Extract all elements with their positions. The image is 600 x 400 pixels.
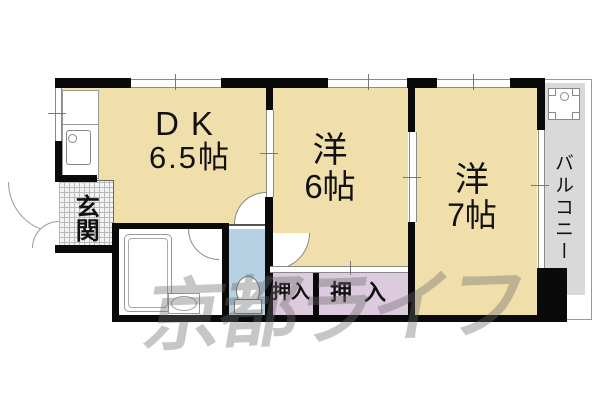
window-west6-tick — [368, 74, 369, 90]
toilet-tank-icon — [234, 299, 262, 314]
window-west7-tick — [473, 74, 474, 90]
wall-toilet-right — [265, 197, 273, 322]
wall-bath-left — [112, 223, 119, 320]
west7-room-name: 洋 — [437, 163, 507, 199]
wall-right-top — [537, 78, 545, 130]
west6-room-size: 6帖 — [295, 170, 365, 205]
wall-top-1 — [55, 78, 131, 88]
kitchen-faucet-icon — [68, 134, 77, 143]
window-dk — [131, 79, 221, 88]
toilet-door-line — [229, 224, 265, 226]
wall-west6-west7-top — [408, 78, 415, 132]
closet-right-label: 押入 — [321, 281, 407, 304]
wall-bath-top — [112, 223, 228, 229]
wall-west6-west7-bottom — [408, 222, 415, 322]
west7-room-label: 洋 7帖 — [437, 163, 507, 232]
washer-pan-icon — [548, 88, 580, 120]
wall-bottom — [112, 315, 567, 322]
window-balcony-tick — [531, 185, 549, 186]
wall-dk-west6-top — [266, 80, 273, 110]
window-balcony — [538, 130, 545, 268]
bathtub-icon — [124, 234, 172, 312]
wall-top-2 — [221, 78, 328, 88]
closet-left-label: 押入 — [268, 283, 314, 303]
closet-door-tick — [350, 261, 351, 275]
west7-room-size: 7帖 — [437, 199, 507, 233]
window-dk-tick — [175, 74, 176, 90]
dk-room-label: DK 6.5帖 — [120, 107, 260, 174]
sliding-door-west6-west7-tick — [403, 177, 421, 178]
wall-genkan-top — [55, 175, 97, 182]
closet-sliding-door — [270, 266, 408, 273]
west6-room-label: 洋 6帖 — [295, 133, 365, 204]
floorplan: バルコニー 玄関 押入 押入 — [0, 0, 600, 400]
balcony-label: バルコニー — [552, 138, 572, 278]
dk-room-size: 6.5帖 — [120, 142, 260, 175]
window-kitchen-tick — [48, 113, 66, 114]
genkan-label: 玄関 — [72, 187, 97, 249]
dk-room-name: DK — [120, 107, 260, 142]
window-kitchen — [55, 88, 62, 141]
sliding-door-dk-west6-tick — [260, 153, 278, 154]
west6-room-name: 洋 — [295, 133, 365, 170]
wall-bath-toilet — [222, 223, 229, 320]
washbasin-icon — [168, 293, 200, 314]
